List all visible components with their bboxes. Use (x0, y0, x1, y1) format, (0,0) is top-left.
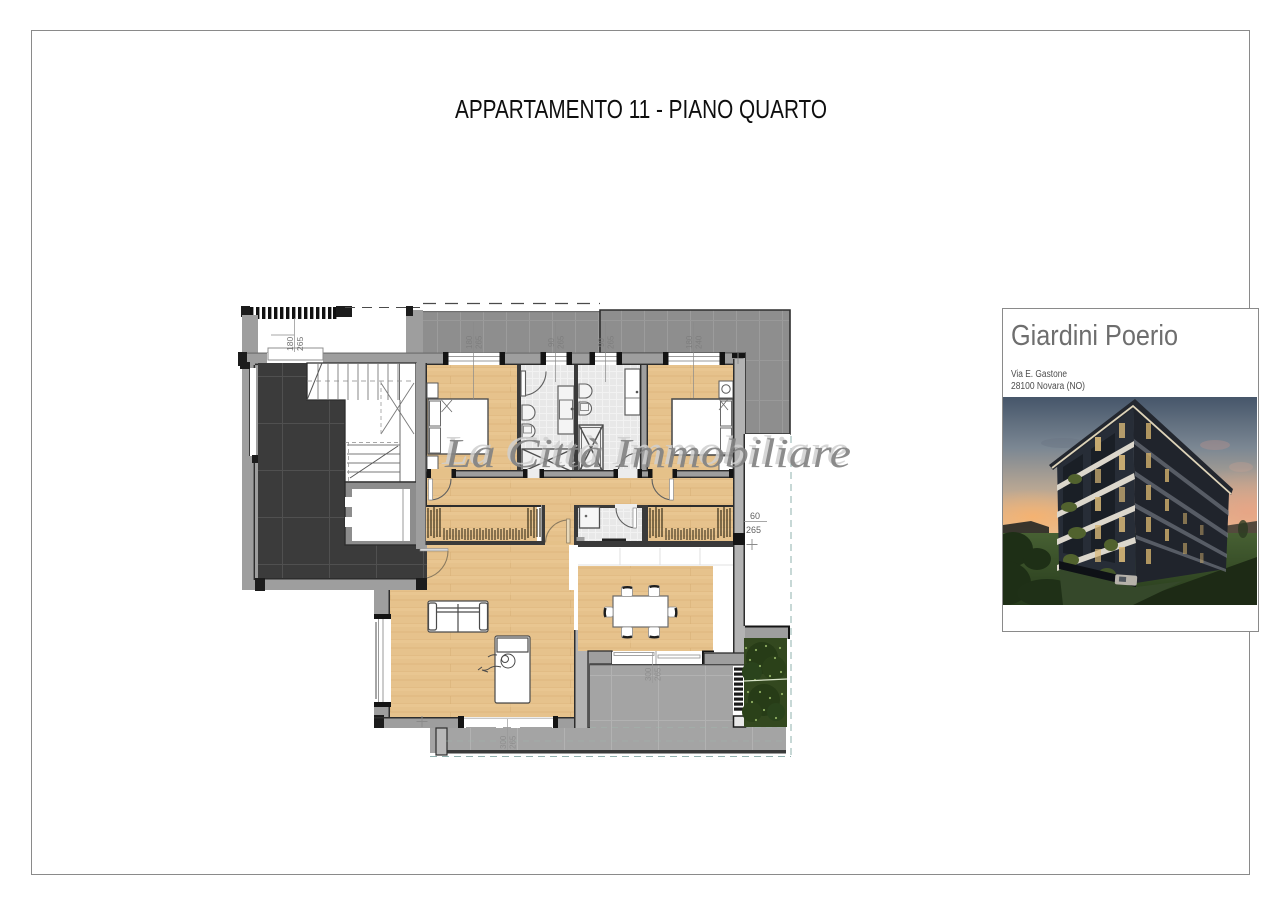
svg-text:265: 265 (557, 335, 566, 349)
svg-text:180: 180 (465, 335, 474, 349)
svg-text:265: 265 (509, 735, 518, 749)
svg-text:Giardini Poerio: Giardini Poerio (1011, 320, 1178, 352)
svg-text:265: 265 (607, 335, 616, 349)
svg-text:28100 Novara (NO): 28100 Novara (NO) (1011, 381, 1085, 392)
svg-text:90: 90 (597, 338, 606, 347)
svg-text:265: 265 (654, 667, 663, 681)
svg-text:300: 300 (644, 667, 653, 681)
svg-text:300: 300 (499, 735, 508, 749)
svg-text:60: 60 (750, 511, 760, 521)
svg-text:265: 265 (295, 337, 305, 351)
svg-text:265: 265 (475, 335, 484, 349)
svg-text:180: 180 (685, 335, 694, 349)
svg-text:240: 240 (695, 335, 704, 349)
svg-text:265: 265 (746, 525, 761, 535)
svg-text:180: 180 (285, 337, 295, 351)
svg-text:La Città Immobiliare: La Città Immobiliare (444, 430, 851, 476)
svg-text:Via E. Gastone: Via E. Gastone (1011, 369, 1067, 380)
svg-text:90: 90 (547, 338, 556, 347)
